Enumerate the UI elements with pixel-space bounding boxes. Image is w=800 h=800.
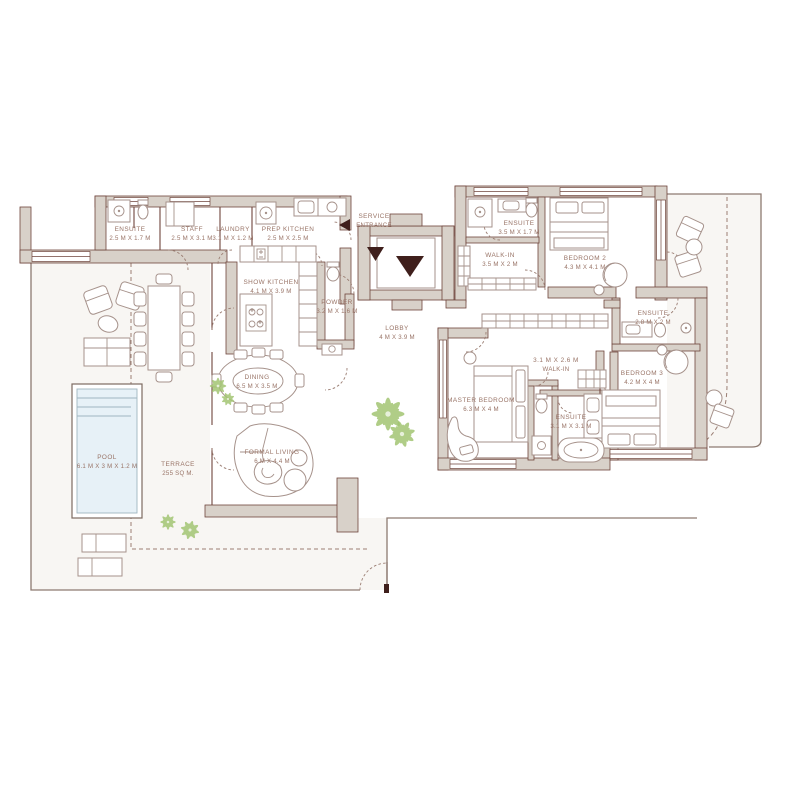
room-label-bedroom3-ensuite: ENSUITE2.8 M X 2 M <box>635 310 671 328</box>
plant-icon <box>210 378 227 395</box>
room-label-show-kitchen: SHOW KITCHEN4.1 M X 3.9 M <box>243 279 298 297</box>
room-label-bedroom2: BEDROOM 24.3 M X 4.1 M <box>564 255 606 273</box>
room-label-dining: DINING6.5 M X 3.5 M <box>236 374 277 392</box>
bedroom3-bed-icon <box>602 390 660 448</box>
room-label-powder: POWDER3.2 M X 1.6 M <box>316 299 357 317</box>
gate-leaf-icon <box>384 584 389 593</box>
kitchen-island-icon <box>240 294 272 346</box>
floor-plan: ENSUITE2.5 M X 1.7 M STAFF2.5 M X 3.1 M … <box>0 0 800 800</box>
hall-wardrobe <box>482 314 608 328</box>
room-label-staff: STAFF2.5 M X 3.1 M <box>171 226 212 244</box>
bedroom2-bed-icon <box>550 198 608 250</box>
label-service-entrance: SERVICEENTRANCE <box>356 213 392 231</box>
room-label-formal-living: FORMAL LIVING6 M X 4.4 M <box>245 449 300 467</box>
room-label-prep-kitchen: PREP KITCHEN2.5 M X 2.5 M <box>262 226 315 244</box>
floor-plan-canvas <box>0 0 800 800</box>
room-label-pool: POOL6.1 M x 3 M x 1.2 M <box>77 454 137 472</box>
room-label-staff-ensuite: ENSUITE2.5 M X 1.7 M <box>109 226 150 244</box>
pool <box>72 384 142 518</box>
room-label-master-bedroom: MASTER BEDROOM6.3 M X 4 M <box>447 397 515 415</box>
master-walkin-wardrobes <box>578 370 606 388</box>
room-label-bedroom2-walkin: WALK-IN3.5 M X 2 M <box>482 252 518 270</box>
room-label-bedroom3: BEDROOM 34.2 M X 4 M <box>621 370 663 388</box>
room-label-master-walkin: 3.1 M X 2.6 MWALK-IN <box>533 357 579 375</box>
room-label-lobby: LOBBY4 M X 3.9 M <box>379 325 415 343</box>
room-label-terrace: TERRACE255 SQ M. <box>161 461 195 479</box>
room-label-bedroom2-ensuite: ENSUITE3.5 M X 1.7 M <box>498 220 539 238</box>
room-label-master-ensuite: ENSUITE3.1 M X 3.1 M <box>550 414 591 432</box>
master-wc-fixtures <box>532 394 551 455</box>
room-label-laundry: LAUNDRY3.1 M X 1.2 M <box>212 226 253 244</box>
